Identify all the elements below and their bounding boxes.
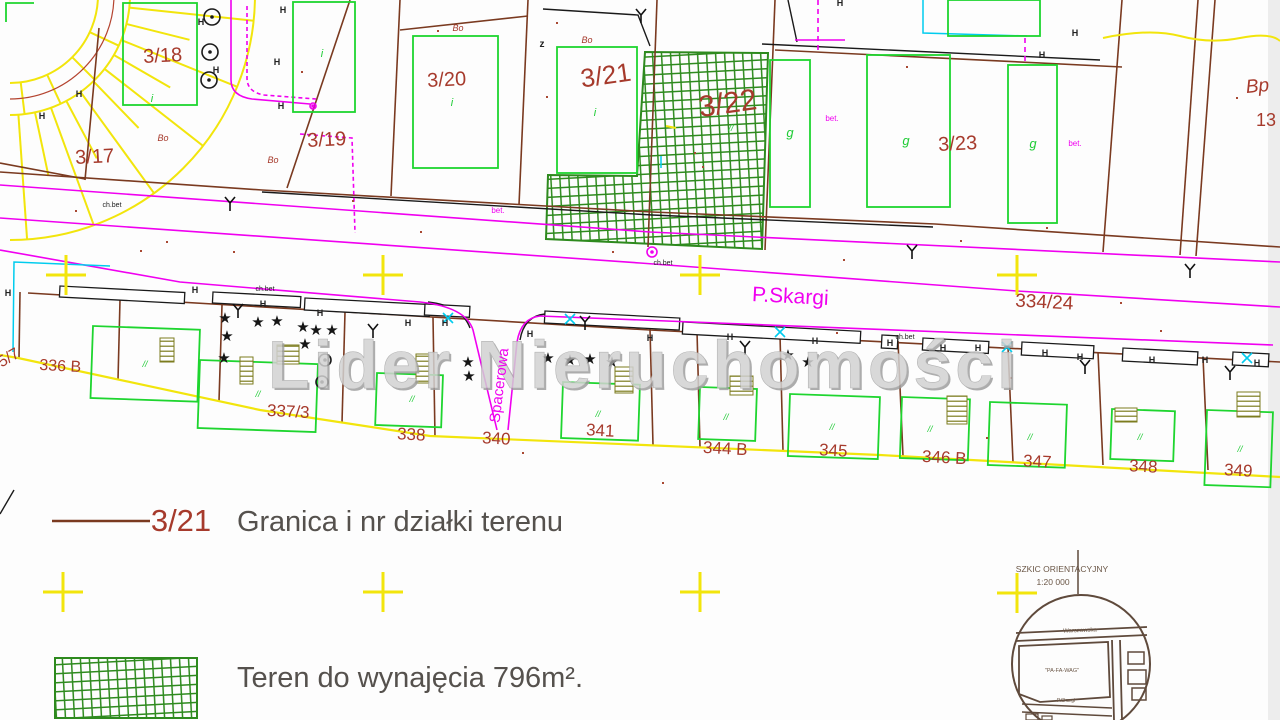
map-label: H (280, 5, 287, 15)
survey-dot (301, 71, 303, 73)
map-label: ch.bet (895, 334, 914, 341)
tree-icon: ★ (218, 310, 231, 327)
survey-dot (166, 241, 168, 243)
survey-dot (546, 96, 548, 98)
tree-icon: ★ (220, 328, 233, 345)
map-label: H (405, 318, 412, 328)
well-dot (210, 15, 214, 19)
survey-dot (662, 482, 664, 484)
map-label: H (5, 288, 12, 298)
map-label: Bo (452, 23, 463, 33)
map-label: 347 (1023, 451, 1052, 471)
survey-dot (140, 250, 142, 252)
tree-icon: ★ (251, 314, 264, 331)
map-label: H (1042, 348, 1049, 358)
map-label: 3/18 (143, 44, 183, 68)
map-label: 336 B (39, 357, 82, 376)
survey-dot (1236, 97, 1238, 99)
map-label: H (1254, 358, 1261, 368)
map-label: Bo (157, 133, 168, 143)
map-label: H (1202, 355, 1209, 365)
stairs-symbol (240, 357, 253, 384)
survey-dot (1160, 330, 1162, 332)
survey-dot (1046, 227, 1048, 229)
map-label: 345 (819, 440, 848, 460)
legend-hatch-swatch (55, 658, 197, 718)
survey-dot (762, 216, 764, 218)
survey-dot (75, 210, 77, 212)
legend-area-text: Teren do wynajęcia 796m². (237, 662, 583, 694)
survey-dot (960, 240, 962, 242)
tree-icon: ★ (217, 350, 230, 367)
survey-dot (843, 259, 845, 261)
map-label: ch.bet (255, 286, 274, 293)
survey-dot (437, 30, 439, 32)
map-label: H (975, 343, 982, 353)
survey-dot (986, 437, 988, 439)
map-label: H (1149, 355, 1156, 365)
map-label: Bp (1245, 75, 1270, 98)
street-label-pskargi: P.Skargi (751, 283, 829, 310)
map-label: g (902, 133, 910, 148)
map-label: 340 (482, 428, 511, 448)
map-label: 344 B (703, 438, 748, 459)
inset-street-bottom-label: P.Skargi (1057, 698, 1075, 704)
map-label: H (213, 65, 220, 75)
map-label: bet. (491, 206, 504, 215)
map-label: H (260, 299, 267, 309)
map-label: bet. (825, 114, 838, 123)
map-label: 334/24 (1015, 291, 1075, 315)
survey-dot (420, 231, 422, 233)
map-label: H (1077, 352, 1084, 362)
map-label: H (940, 343, 947, 353)
right-edge-strip (1268, 0, 1280, 720)
inset-block-label: "PA-FA-WAG" (1045, 668, 1079, 674)
cadastral-map-screenshot: ★★★★★★★★★★★★★★★★★ Lider Nieruchomości Li… (0, 0, 1280, 720)
map-label: 13 (1256, 110, 1276, 130)
well-dot (207, 78, 211, 82)
legend-boundary-number: 3/21 (151, 503, 211, 538)
survey-dot (522, 452, 524, 454)
map-label: H (76, 89, 83, 99)
map-label: 337/3 (267, 401, 310, 422)
stairs-symbol (160, 338, 174, 362)
map-label: H (274, 57, 281, 67)
map-label: H (727, 332, 734, 342)
survey-dot (1120, 302, 1122, 304)
map-label: H (192, 285, 199, 295)
map-label: 338 (397, 424, 426, 444)
map-label: Bo (581, 35, 592, 45)
map-label: ch.bet (653, 260, 672, 267)
map-label: Bo (267, 155, 278, 165)
survey-dot (694, 152, 696, 154)
map-label: 348 (1129, 456, 1158, 476)
map-label: H (442, 318, 449, 328)
map-label: H (647, 333, 654, 343)
map-label: H (1039, 50, 1046, 60)
survey-dot (352, 200, 354, 202)
well-dot (650, 250, 654, 254)
map-label: H (812, 336, 819, 346)
map-label: ch.bet (102, 202, 121, 209)
map-label: H (837, 0, 844, 8)
survey-dot (556, 22, 558, 24)
map-label: H (39, 111, 46, 121)
map-label: z (540, 39, 545, 50)
inset-street-top-label: Warszawska (1063, 627, 1098, 634)
stairs-symbol (1115, 408, 1137, 422)
map-label: 3/17 (75, 145, 115, 169)
map-label: H (317, 308, 324, 318)
map-label: 3/23 (938, 132, 978, 156)
inset-scale: 1:20 000 (1036, 577, 1069, 587)
map-label: H (1072, 28, 1079, 38)
well-dot (208, 50, 212, 54)
map-label: 349 (1224, 460, 1253, 480)
survey-dot (702, 166, 704, 168)
map-label: bet. (1068, 139, 1081, 148)
map-label: H (278, 101, 285, 111)
map-label: 3/19 (307, 128, 347, 152)
map-label: g (786, 125, 794, 140)
survey-dot (612, 251, 614, 253)
map-label: g (1029, 136, 1037, 151)
site-plan-map: ★★★★★★★★★★★★★★★★★ Lider Nieruchomości Li… (0, 0, 1280, 720)
survey-dot (233, 251, 235, 253)
map-label: H (527, 329, 534, 339)
map-label: H (887, 338, 894, 348)
map-label: H (198, 17, 205, 27)
stairs-symbol (1237, 392, 1260, 417)
map-label: 3/20 (427, 68, 467, 92)
map-label: 346 B (922, 447, 967, 468)
inset-title: SZKIC ORIENTACYJNY (1016, 564, 1109, 574)
survey-dot (906, 66, 908, 68)
legend-boundary-text: Granica i nr działki terenu (237, 506, 563, 538)
map-label: 341 (586, 420, 615, 440)
well-dot (311, 104, 315, 108)
